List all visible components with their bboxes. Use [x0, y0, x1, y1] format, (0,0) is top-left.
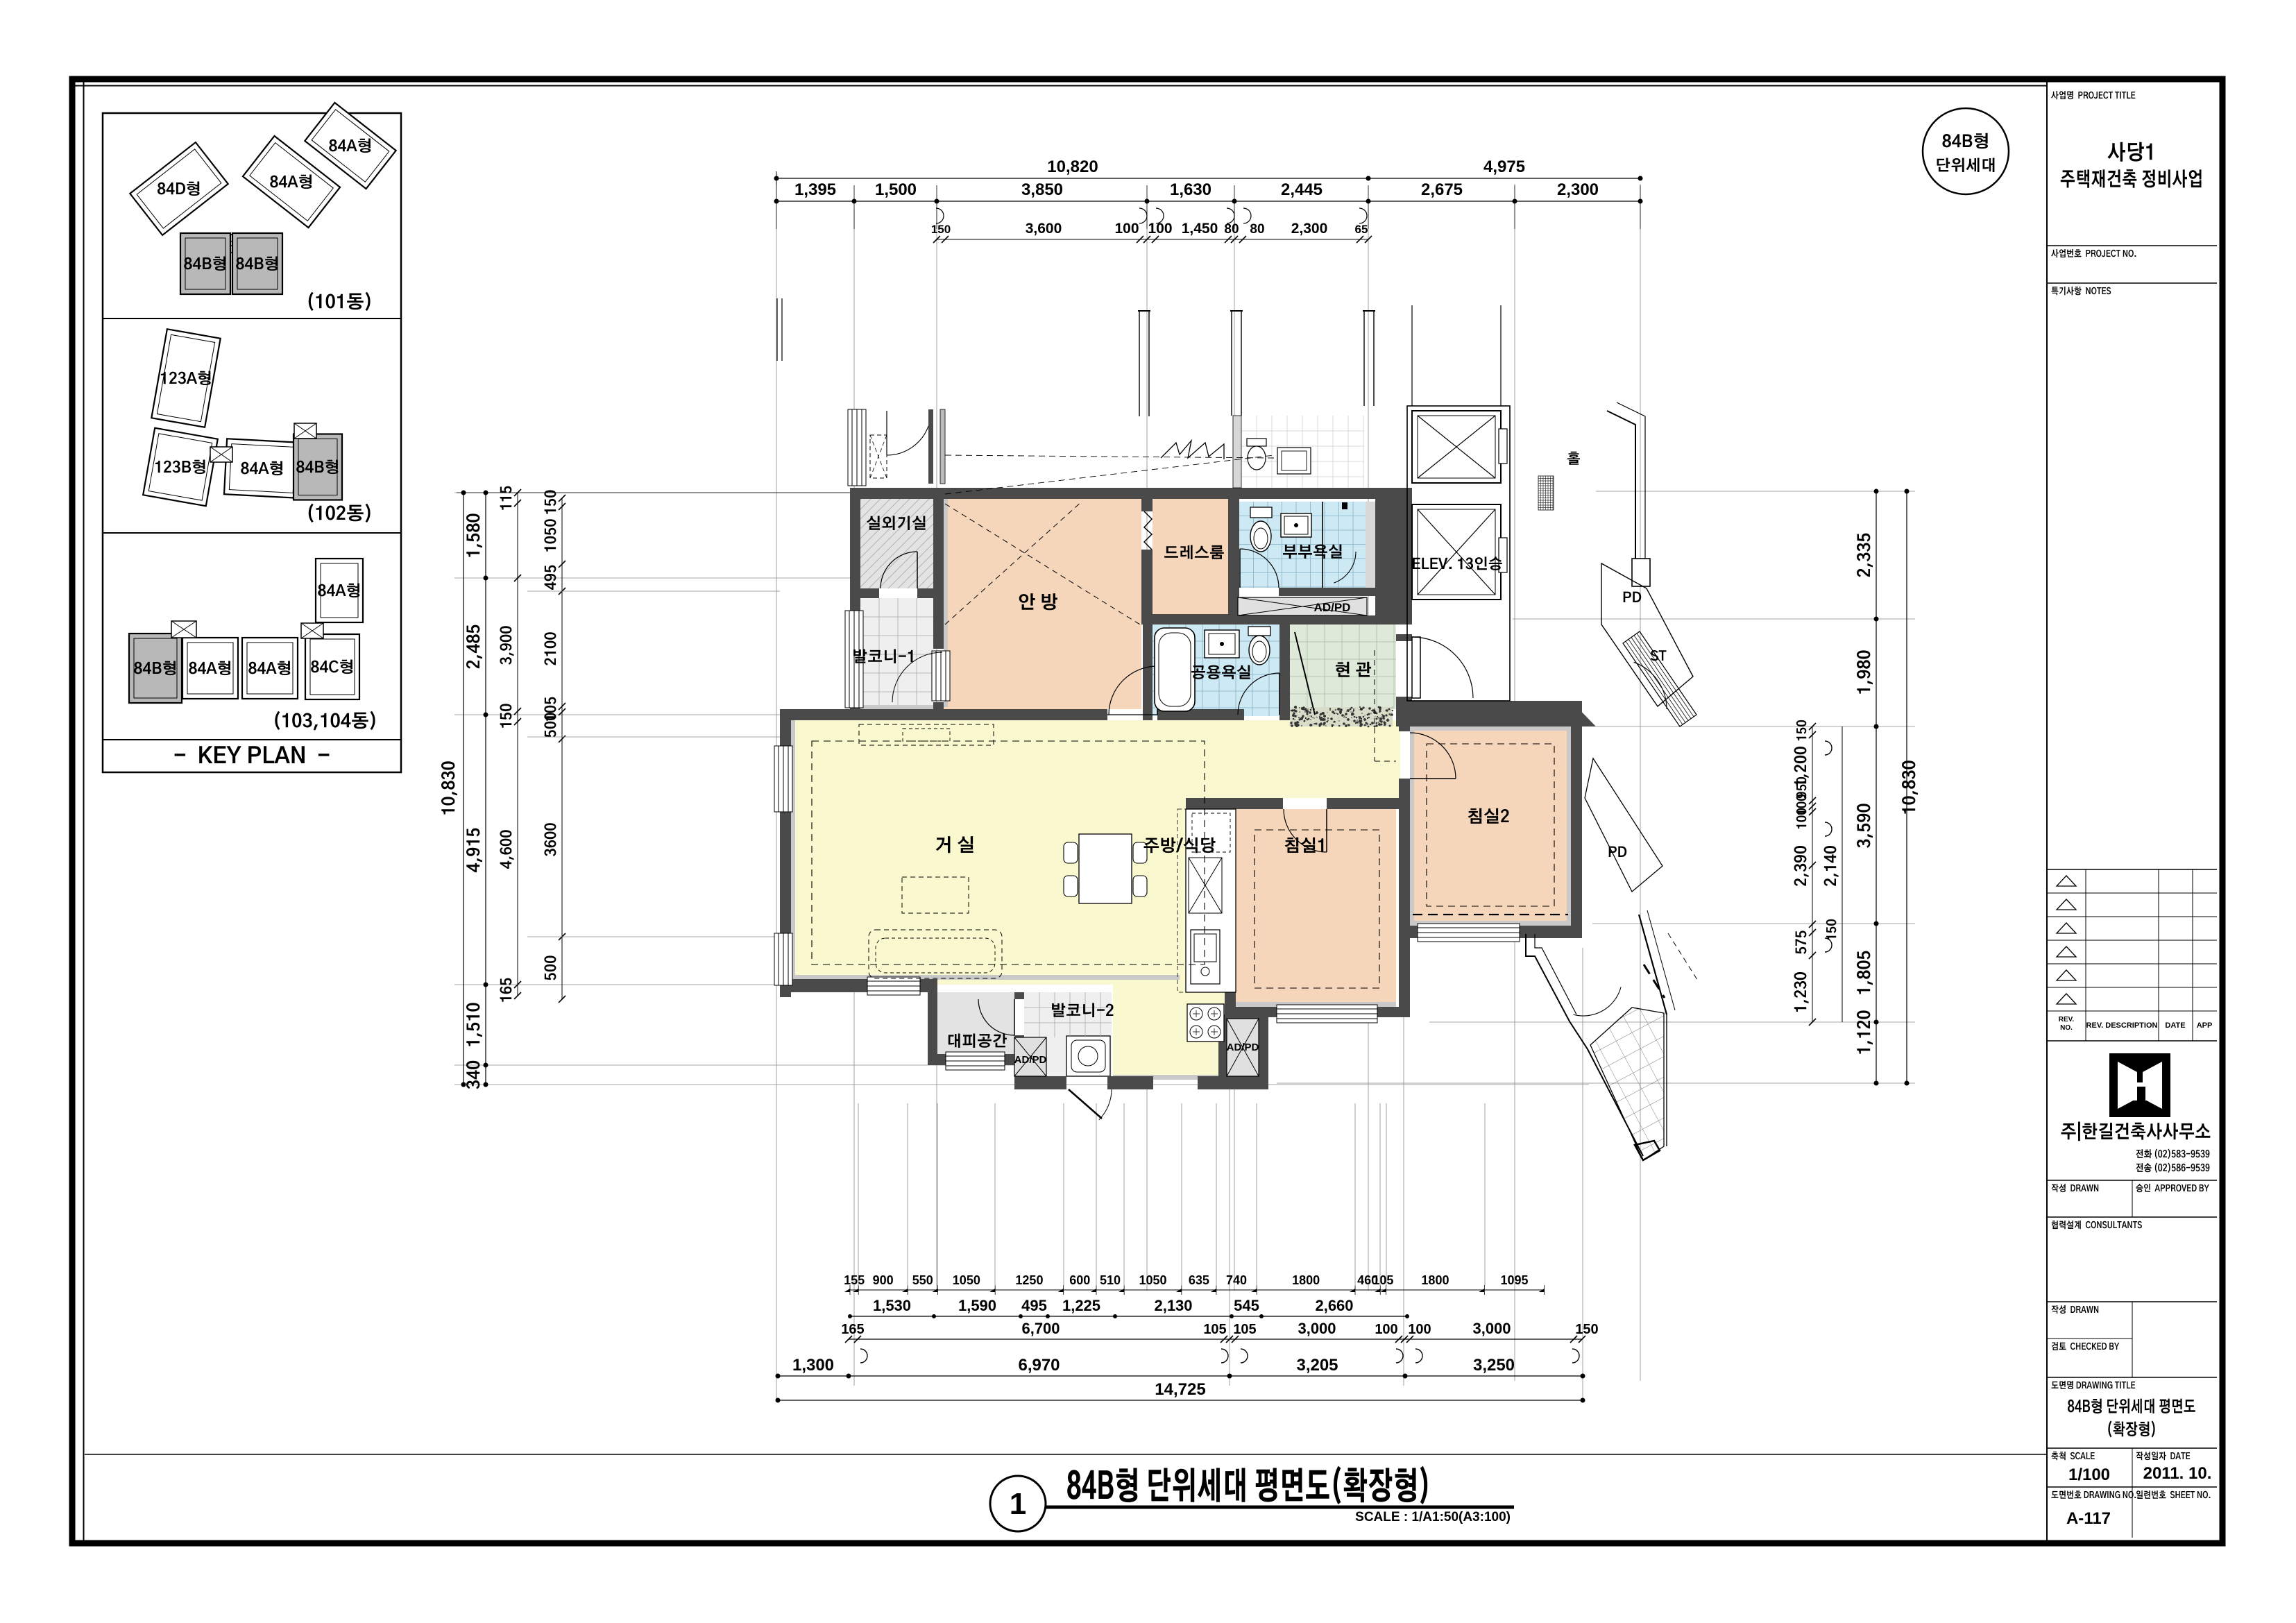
svg-text:545: 545	[1234, 1297, 1259, 1314]
svg-text:3,600: 3,600	[1026, 221, 1062, 237]
svg-text:APP: APP	[2197, 1021, 2213, 1030]
svg-text:3,250: 3,250	[1473, 1356, 1515, 1375]
svg-text:1800: 1800	[1292, 1273, 1320, 1287]
svg-text:AD/PD: AD/PD	[1314, 601, 1351, 614]
svg-text:105: 105	[1372, 1273, 1393, 1287]
svg-text:2011. 10.: 2011. 10.	[2143, 1464, 2212, 1483]
svg-text:2,660: 2,660	[1315, 1297, 1353, 1314]
svg-text:150: 150	[1575, 1322, 1598, 1337]
svg-text:3,000: 3,000	[1472, 1320, 1511, 1337]
svg-text:740: 740	[1226, 1273, 1247, 1287]
svg-text:6,970: 6,970	[1018, 1356, 1060, 1375]
svg-text:3,850: 3,850	[1021, 180, 1063, 199]
svg-text:AD/PD: AD/PD	[1014, 1054, 1047, 1066]
svg-text:100: 100	[1408, 1322, 1431, 1337]
svg-text:100: 100	[1148, 221, 1172, 237]
svg-text:1,590: 1,590	[958, 1297, 996, 1314]
svg-text:65: 65	[1355, 223, 1368, 236]
svg-text:2,675: 2,675	[1421, 180, 1463, 199]
svg-text:2,300: 2,300	[1557, 180, 1599, 199]
svg-text:100: 100	[1375, 1322, 1397, 1337]
svg-text:1250: 1250	[1015, 1273, 1043, 1287]
svg-text:510: 510	[1100, 1273, 1121, 1287]
svg-text:2,130: 2,130	[1154, 1297, 1192, 1314]
svg-text:635: 635	[1189, 1273, 1209, 1287]
svg-text:1/100: 1/100	[2068, 1465, 2110, 1484]
svg-text:DATE: DATE	[2165, 1021, 2185, 1030]
svg-text:80: 80	[1224, 222, 1239, 237]
svg-text:1095: 1095	[1500, 1273, 1528, 1287]
svg-text:1050: 1050	[1139, 1273, 1166, 1287]
svg-text:10,820: 10,820	[1047, 158, 1098, 176]
svg-text:SCALE : 1/A1:50(A3:100): SCALE : 1/A1:50(A3:100)	[1355, 1510, 1511, 1524]
svg-text:14,725: 14,725	[1155, 1380, 1205, 1399]
svg-text:1,500: 1,500	[875, 180, 917, 199]
svg-text:1,630: 1,630	[1170, 180, 1211, 199]
svg-text:1,225: 1,225	[1062, 1297, 1100, 1314]
svg-text:1,300: 1,300	[792, 1356, 834, 1375]
svg-text:NO.: NO.	[2060, 1024, 2073, 1032]
svg-text:3,205: 3,205	[1296, 1356, 1338, 1375]
svg-text:4,975: 4,975	[1483, 158, 1525, 176]
svg-text:A-117: A-117	[2066, 1509, 2111, 1528]
svg-text:1,530: 1,530	[873, 1297, 911, 1314]
svg-text:105: 105	[1203, 1322, 1226, 1337]
svg-text:1: 1	[1010, 1487, 1026, 1521]
svg-text:155: 155	[844, 1273, 865, 1287]
svg-text:1,395: 1,395	[794, 180, 836, 199]
svg-text:6,700: 6,700	[1021, 1320, 1060, 1337]
svg-text:3,000: 3,000	[1298, 1320, 1336, 1337]
svg-text:1050: 1050	[953, 1273, 980, 1287]
svg-text:1,450: 1,450	[1182, 221, 1218, 237]
svg-text:150: 150	[931, 223, 951, 236]
svg-text:100: 100	[1114, 221, 1139, 237]
svg-text:2,300: 2,300	[1291, 221, 1328, 237]
svg-text:REV.: REV.	[2059, 1016, 2075, 1023]
svg-text:495: 495	[1021, 1297, 1047, 1314]
svg-text:REV. DESCRIPTION: REV. DESCRIPTION	[2086, 1021, 2158, 1030]
svg-text:2,445: 2,445	[1281, 180, 1323, 199]
svg-text:600: 600	[1069, 1273, 1090, 1287]
svg-text:165: 165	[841, 1322, 864, 1337]
svg-text:AD/PD: AD/PD	[1227, 1042, 1259, 1053]
svg-text:80: 80	[1250, 222, 1264, 237]
svg-text:550: 550	[912, 1273, 933, 1287]
svg-text:105: 105	[1233, 1322, 1256, 1337]
svg-text:1800: 1800	[1421, 1273, 1449, 1287]
svg-text:900: 900	[873, 1273, 894, 1287]
